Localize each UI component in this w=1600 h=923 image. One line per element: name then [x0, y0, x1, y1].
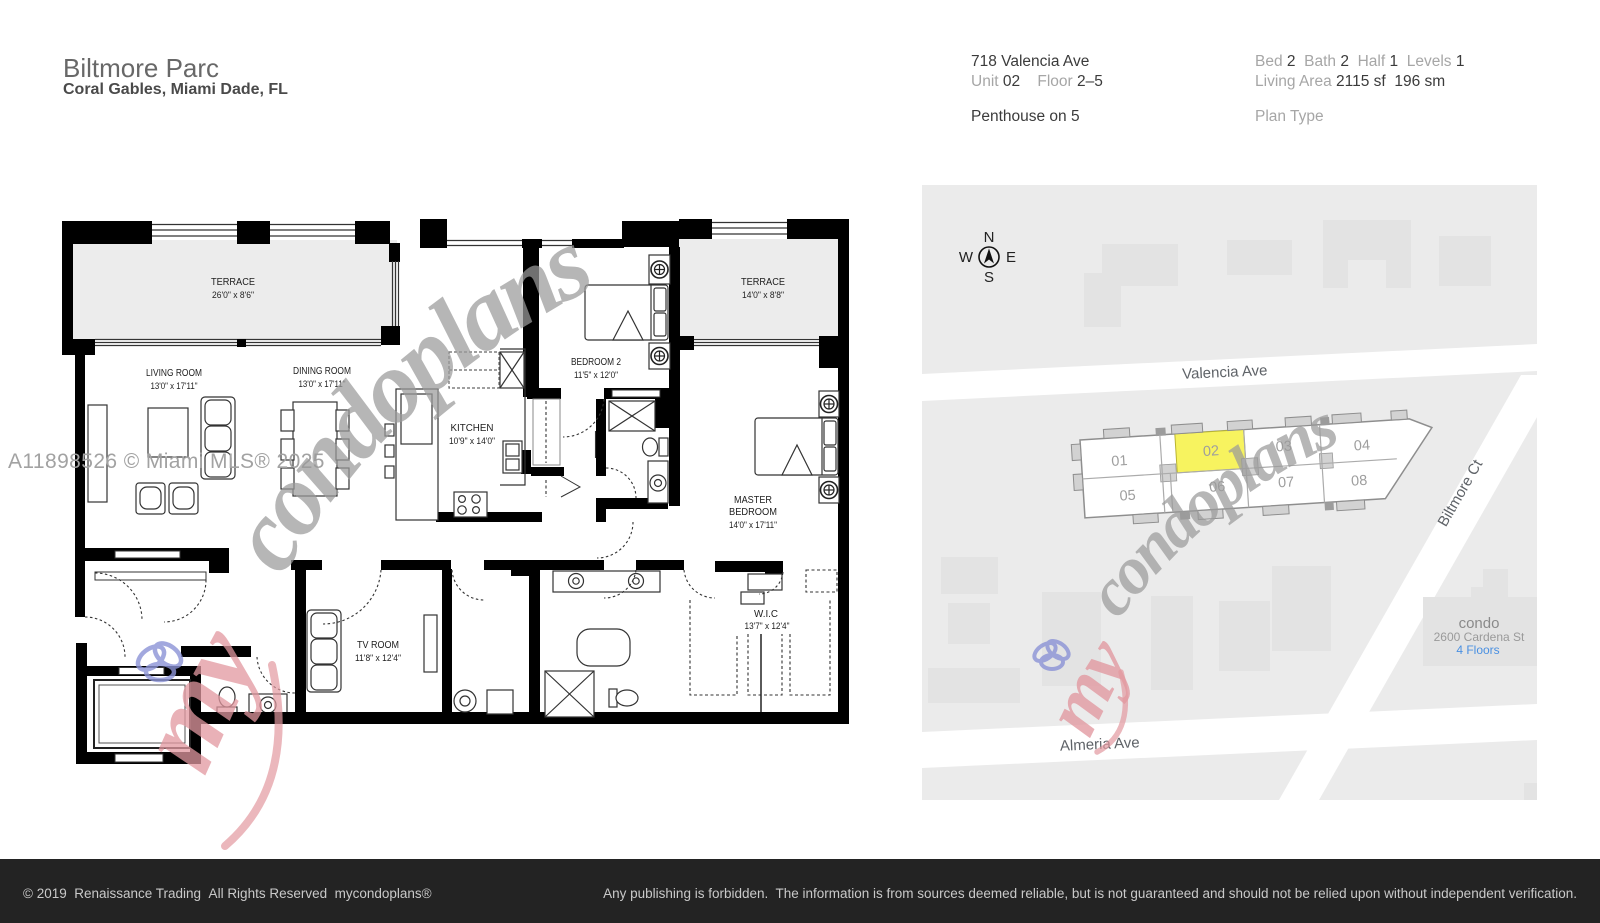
- svg-text:LIVING ROOM: LIVING ROOM: [146, 368, 202, 379]
- svg-text:26'0" x 8'6": 26'0" x 8'6": [212, 290, 254, 300]
- svg-text:E: E: [1006, 249, 1016, 266]
- svg-text:14'0" x 8'8": 14'0" x 8'8": [742, 290, 784, 300]
- svg-text:TV ROOM: TV ROOM: [357, 640, 399, 651]
- svg-text:2600 Cardena St: 2600 Cardena St: [1434, 630, 1525, 644]
- svg-text:BEDROOM 2: BEDROOM 2: [571, 357, 621, 368]
- svg-text:4 Floors: 4 Floors: [1456, 643, 1499, 657]
- svg-text:MASTER: MASTER: [734, 495, 772, 506]
- svg-text:08: 08: [1351, 473, 1368, 490]
- svg-text:11'8" x 12'4": 11'8" x 12'4": [355, 653, 401, 663]
- svg-text:05: 05: [1119, 488, 1136, 505]
- svg-text:14'0" x 17'11": 14'0" x 17'11": [729, 520, 777, 530]
- svg-text:S: S: [984, 269, 994, 286]
- svg-text:10'9" x 14'0": 10'9" x 14'0": [449, 436, 495, 446]
- svg-text:BEDROOM: BEDROOM: [729, 507, 777, 518]
- svg-text:TERRACE: TERRACE: [741, 277, 785, 288]
- svg-text:N: N: [984, 229, 995, 246]
- svg-text:TERRACE: TERRACE: [211, 277, 255, 288]
- svg-text:04: 04: [1353, 438, 1370, 455]
- svg-text:KITCHEN: KITCHEN: [451, 423, 494, 434]
- svg-text:W: W: [959, 249, 974, 266]
- svg-text:13'0" x 17'11": 13'0" x 17'11": [151, 381, 198, 391]
- svg-text:11'5" x 12'0": 11'5" x 12'0": [574, 370, 618, 380]
- svg-text:W.I.C: W.I.C: [754, 609, 778, 620]
- svg-text:01: 01: [1111, 453, 1128, 470]
- svg-text:13'7" x 12'4": 13'7" x 12'4": [745, 621, 790, 631]
